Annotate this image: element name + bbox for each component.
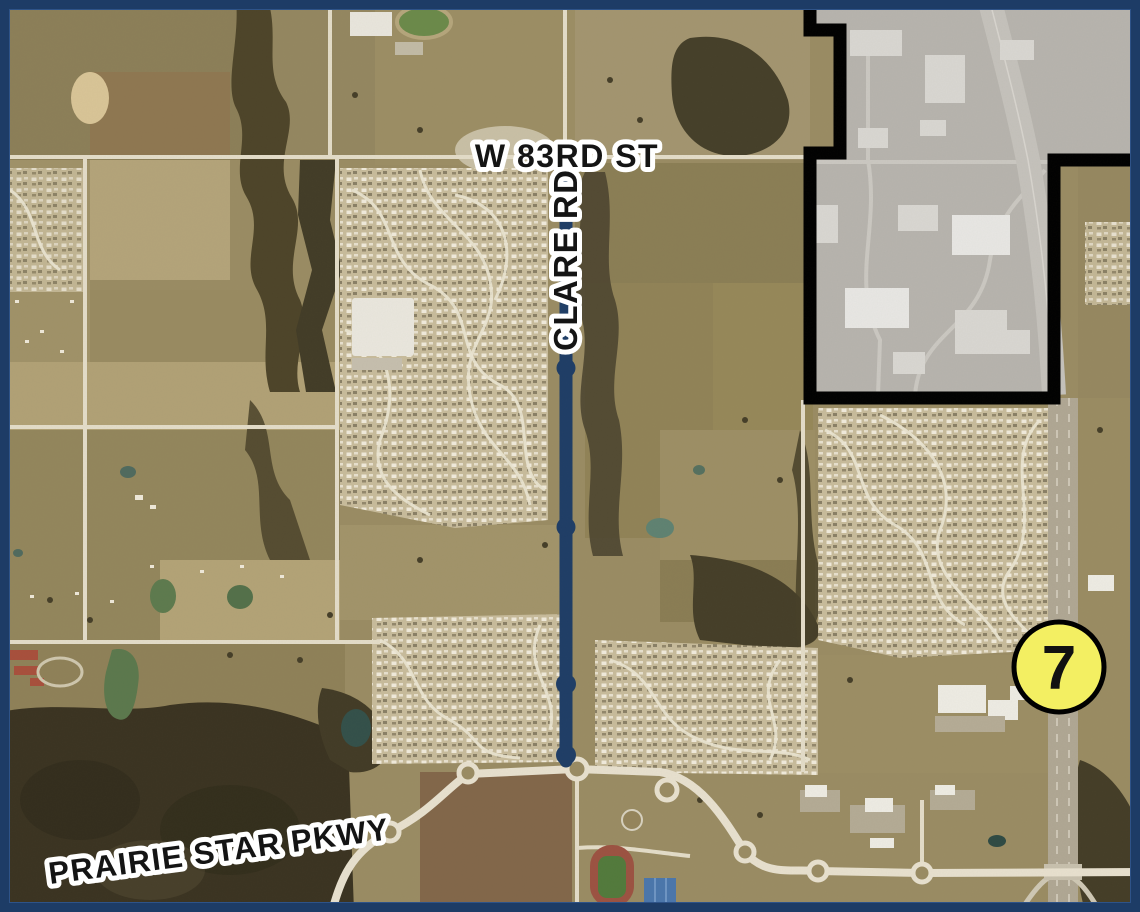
aerial-map: W 83RD ST CLARE RD PRAIRIE STAR PKWY 7 (0, 0, 1140, 912)
aerial-grain-overlay (0, 0, 1140, 912)
highway-marker-number: 7 (1042, 634, 1076, 703)
highway-marker: 7 (1014, 622, 1104, 712)
map-frame: W 83RD ST CLARE RD PRAIRIE STAR PKWY 7 (0, 0, 1140, 912)
street-label-clare-rd: CLARE RD (547, 169, 584, 352)
